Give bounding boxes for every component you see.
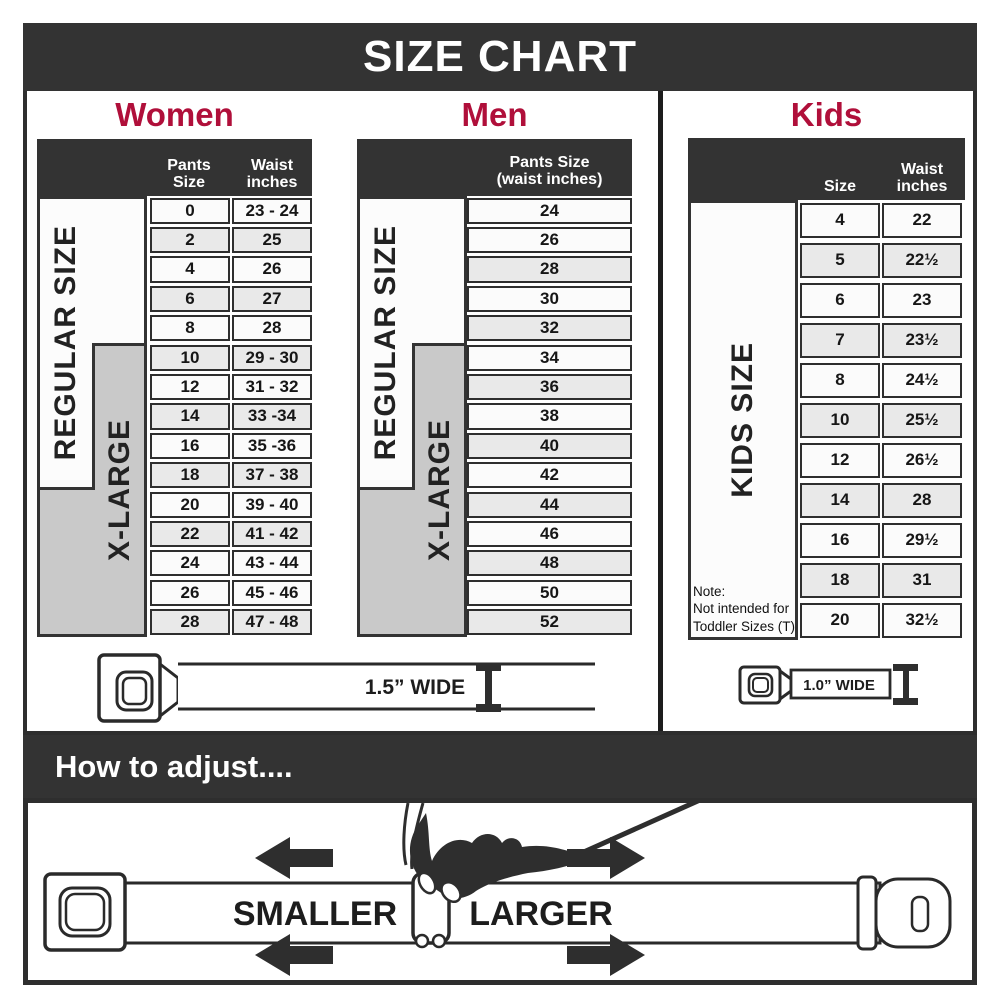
table-row: 1428 [800, 480, 962, 520]
table-cell-waist: 24½ [882, 363, 962, 398]
men-pants-size-header: Pants Size (waist inches) [467, 154, 632, 188]
table-cell-waist: 22 [882, 203, 962, 238]
table-cell-waist: 32½ [882, 603, 962, 638]
title-banner: SIZE CHART [23, 23, 977, 91]
men-table-header: Pants Size (waist inches) [357, 139, 632, 196]
table-cell-size: 10 [150, 345, 230, 371]
table-cell-waist: 23 - 24 [232, 198, 312, 224]
table-cell-size: 42 [467, 462, 632, 488]
adult-belt-illustration: 1.5” WIDE [35, 644, 655, 728]
table-row: 40 [467, 431, 632, 460]
table-cell-size: 8 [150, 315, 230, 341]
table-cell-waist: 37 - 38 [232, 462, 312, 488]
table-row: 426 [150, 255, 312, 284]
table-cell-waist: 39 - 40 [232, 492, 312, 518]
table-cell-size: 20 [150, 492, 230, 518]
table-row: 623 [800, 280, 962, 320]
kids-size-header: Size [800, 178, 880, 195]
size-tables-panel: Women Men Kids Pants Size Waist inches R… [23, 91, 977, 735]
table-row: 1635 -36 [150, 431, 312, 460]
table-cell-size: 2 [150, 227, 230, 253]
table-row: 627 [150, 284, 312, 313]
table-cell-size: 4 [150, 256, 230, 282]
panel-divider [658, 91, 663, 731]
men-heading: Men [357, 93, 632, 137]
table-cell-waist: 45 - 46 [232, 580, 312, 606]
table-row: 24 [467, 196, 632, 225]
kids-belt-illustration: 1.0” WIDE [715, 648, 965, 728]
buckle-wing [780, 671, 791, 699]
table-row: 2847 - 48 [150, 607, 312, 636]
table-cell-waist: 27 [232, 286, 312, 312]
table-cell-waist: 31 - 32 [232, 374, 312, 400]
table-cell-size: 26 [467, 227, 632, 253]
table-cell-size: 14 [800, 483, 880, 518]
table-cell-size: 14 [150, 403, 230, 429]
table-cell-waist: 23 [882, 283, 962, 318]
table-row: 46 [467, 519, 632, 548]
women-xlarge-label: X-LARGE [92, 343, 147, 637]
table-row: 42 [467, 461, 632, 490]
kids-rows: 422522½623723½824½1025½1226½14281629½183… [800, 200, 962, 640]
table-cell-waist: 29 - 30 [232, 345, 312, 371]
table-cell-waist: 47 - 48 [232, 609, 312, 635]
table-cell-waist: 26 [232, 256, 312, 282]
table-cell-waist: 33 -34 [232, 403, 312, 429]
table-row: 2241 - 42 [150, 519, 312, 548]
kids-note-title: Note: [693, 583, 796, 600]
table-row: 522½ [800, 240, 962, 280]
kids-size-label: KIDS SIZE [688, 200, 798, 640]
women-rows: 023 - 242254266278281029 - 301231 - 3214… [150, 196, 312, 637]
table-cell-waist: 26½ [882, 443, 962, 478]
table-cell-size: 18 [800, 563, 880, 598]
men-size-table: Pants Size (waist inches) REGULAR SIZE X… [357, 139, 632, 637]
page-title: SIZE CHART [363, 32, 637, 82]
table-cell-size: 30 [467, 286, 632, 312]
table-cell-size: 28 [467, 256, 632, 282]
buckle-wing [160, 664, 178, 716]
table-cell-size: 52 [467, 609, 632, 635]
table-row: 30 [467, 284, 632, 313]
how-to-adjust-bar: How to adjust.... [23, 735, 977, 798]
table-row: 1831 [800, 560, 962, 600]
larger-label: LARGER [469, 895, 613, 933]
table-row: 28 [467, 255, 632, 284]
table-cell-size: 24 [150, 550, 230, 576]
table-row: 32 [467, 314, 632, 343]
table-row: 34 [467, 343, 632, 372]
kids-note: Note: Not intended for Toddler Sizes (T) [693, 583, 796, 635]
adult-belt-width-label: 1.5” WIDE [365, 676, 465, 699]
men-regular-size-label: REGULAR SIZE [357, 196, 415, 490]
table-cell-size: 10 [800, 403, 880, 438]
table-row: 2443 - 44 [150, 549, 312, 578]
adjust-illustration-panel: SMALLER LARGER [23, 798, 977, 985]
table-cell-waist: 25 [232, 227, 312, 253]
men-rows: 242628303234363840424446485052 [467, 196, 632, 637]
kids-heading: Kids [688, 93, 965, 137]
adjust-illustration: SMALLER LARGER [28, 803, 972, 980]
table-row: 1629½ [800, 520, 962, 560]
table-cell-waist: 28 [232, 315, 312, 341]
table-row: 828 [150, 314, 312, 343]
table-cell-size: 50 [467, 580, 632, 606]
belt-keeper [858, 877, 876, 949]
women-waist-header: Waist inches [234, 157, 310, 191]
table-row: 2039 - 40 [150, 490, 312, 519]
smaller-label: SMALLER [233, 895, 397, 933]
table-row: 1837 - 38 [150, 461, 312, 490]
table-cell-size: 22 [150, 521, 230, 547]
arrow-left-icon [255, 837, 333, 879]
women-pants-size-header: Pants Size [150, 157, 228, 191]
table-cell-size: 18 [150, 462, 230, 488]
table-cell-size: 36 [467, 374, 632, 400]
table-row: 44 [467, 490, 632, 519]
table-row: 36 [467, 372, 632, 401]
table-row: 1029 - 30 [150, 343, 312, 372]
kids-waist-header: Waist inches [882, 161, 962, 195]
table-cell-size: 26 [150, 580, 230, 606]
table-row: 38 [467, 402, 632, 431]
women-heading: Women [37, 93, 312, 137]
table-cell-size: 46 [467, 521, 632, 547]
table-cell-waist: 23½ [882, 323, 962, 358]
table-row: 225 [150, 225, 312, 254]
men-table-body: REGULAR SIZE X-LARGE 2426283032343638404… [357, 196, 632, 637]
table-cell-size: 4 [800, 203, 880, 238]
table-cell-size: 12 [800, 443, 880, 478]
table-cell-size: 0 [150, 198, 230, 224]
kids-note-line1: Not intended for [693, 600, 796, 617]
table-cell-size: 8 [800, 363, 880, 398]
table-row: 723½ [800, 320, 962, 360]
table-cell-size: 40 [467, 433, 632, 459]
table-cell-waist: 25½ [882, 403, 962, 438]
how-to-adjust-heading: How to adjust.... [23, 749, 293, 785]
table-cell-size: 38 [467, 403, 632, 429]
kids-belt-width-label: 1.0” WIDE [803, 677, 875, 694]
men-xlarge-label: X-LARGE [412, 343, 467, 637]
table-cell-size: 28 [150, 609, 230, 635]
table-cell-size: 6 [150, 286, 230, 312]
table-cell-waist: 43 - 44 [232, 550, 312, 576]
table-row: 422 [800, 200, 962, 240]
table-row: 2032½ [800, 600, 962, 640]
kids-size-table: Size Waist inches KIDS SIZE Note: Not in… [688, 138, 965, 640]
table-cell-size: 44 [467, 492, 632, 518]
table-cell-waist: 28 [882, 483, 962, 518]
women-table-body: REGULAR SIZE X-LARGE 023 - 2422542662782… [37, 196, 312, 637]
table-cell-size: 32 [467, 315, 632, 341]
table-cell-waist: 29½ [882, 523, 962, 558]
table-row: 1025½ [800, 400, 962, 440]
table-cell-size: 16 [150, 433, 230, 459]
table-cell-size: 6 [800, 283, 880, 318]
women-size-table: Pants Size Waist inches REGULAR SIZE X-L… [37, 139, 312, 637]
table-cell-size: 7 [800, 323, 880, 358]
table-cell-waist: 31 [882, 563, 962, 598]
table-row: 023 - 24 [150, 196, 312, 225]
table-cell-size: 12 [150, 374, 230, 400]
table-cell-size: 48 [467, 550, 632, 576]
table-row: 50 [467, 578, 632, 607]
kids-table-header: Size Waist inches [688, 138, 965, 200]
table-cell-size: 24 [467, 198, 632, 224]
size-chart-page: SIZE CHART Women Men Kids Pants Size Wai… [0, 0, 1000, 1000]
table-row: 1433 -34 [150, 402, 312, 431]
table-cell-size: 20 [800, 603, 880, 638]
table-row: 48 [467, 549, 632, 578]
table-row: 52 [467, 607, 632, 636]
kids-table-body: KIDS SIZE Note: Not intended for Toddler… [688, 200, 965, 640]
table-cell-size: 16 [800, 523, 880, 558]
table-row: 1231 - 32 [150, 372, 312, 401]
table-row: 824½ [800, 360, 962, 400]
table-cell-size: 5 [800, 243, 880, 278]
women-regular-size-label: REGULAR SIZE [37, 196, 95, 490]
table-cell-waist: 41 - 42 [232, 521, 312, 547]
table-cell-size: 34 [467, 345, 632, 371]
table-row: 1226½ [800, 440, 962, 480]
table-cell-waist: 22½ [882, 243, 962, 278]
table-cell-waist: 35 -36 [232, 433, 312, 459]
women-table-header: Pants Size Waist inches [37, 139, 312, 196]
table-row: 26 [467, 225, 632, 254]
table-row: 2645 - 46 [150, 578, 312, 607]
kids-note-line2: Toddler Sizes (T) [693, 618, 796, 635]
